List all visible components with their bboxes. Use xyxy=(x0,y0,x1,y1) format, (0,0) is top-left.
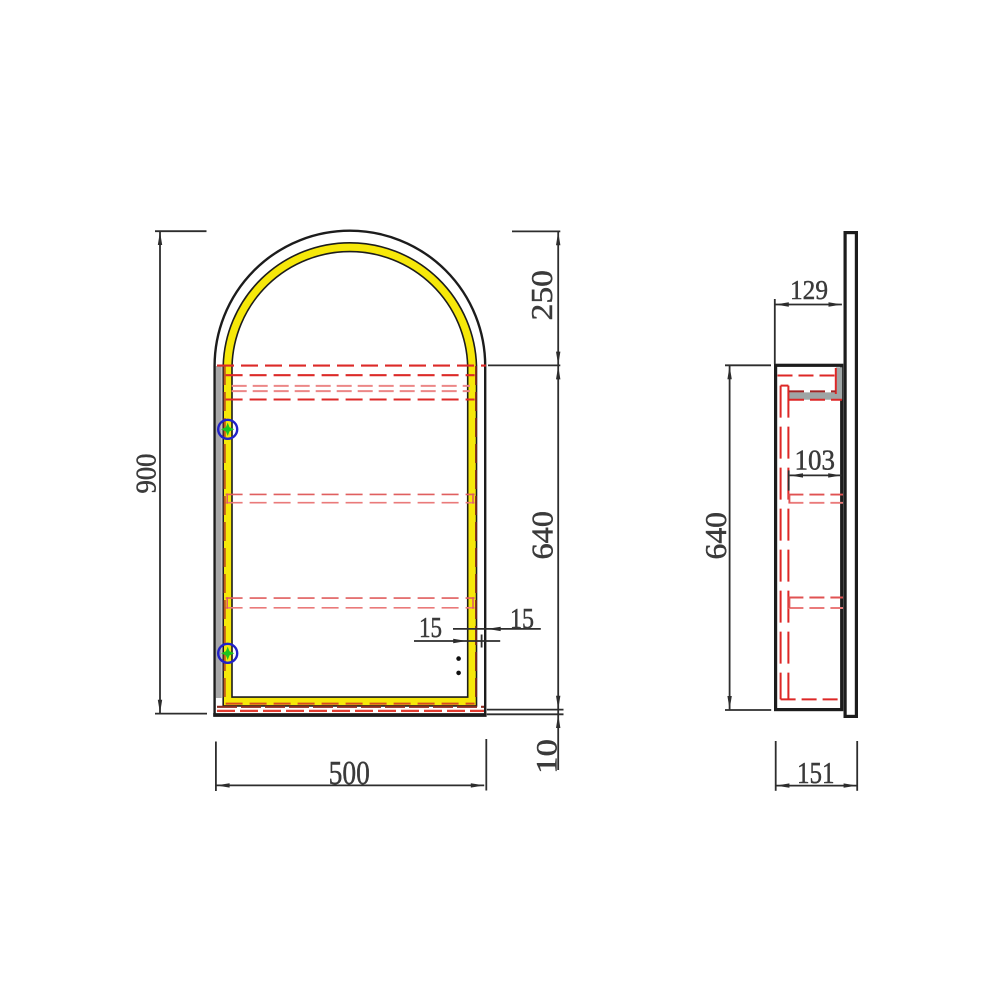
svg-text:10: 10 xyxy=(531,739,564,774)
svg-text:15: 15 xyxy=(510,604,534,635)
svg-text:250: 250 xyxy=(524,270,559,321)
svg-text:640: 640 xyxy=(525,511,560,560)
svg-text:151: 151 xyxy=(797,755,835,790)
svg-text:900: 900 xyxy=(131,454,163,494)
svg-text:103: 103 xyxy=(795,446,836,477)
svg-text:129: 129 xyxy=(790,274,828,305)
svg-text:640: 640 xyxy=(698,512,733,560)
svg-text:500: 500 xyxy=(329,755,370,792)
svg-text:15: 15 xyxy=(419,613,442,644)
